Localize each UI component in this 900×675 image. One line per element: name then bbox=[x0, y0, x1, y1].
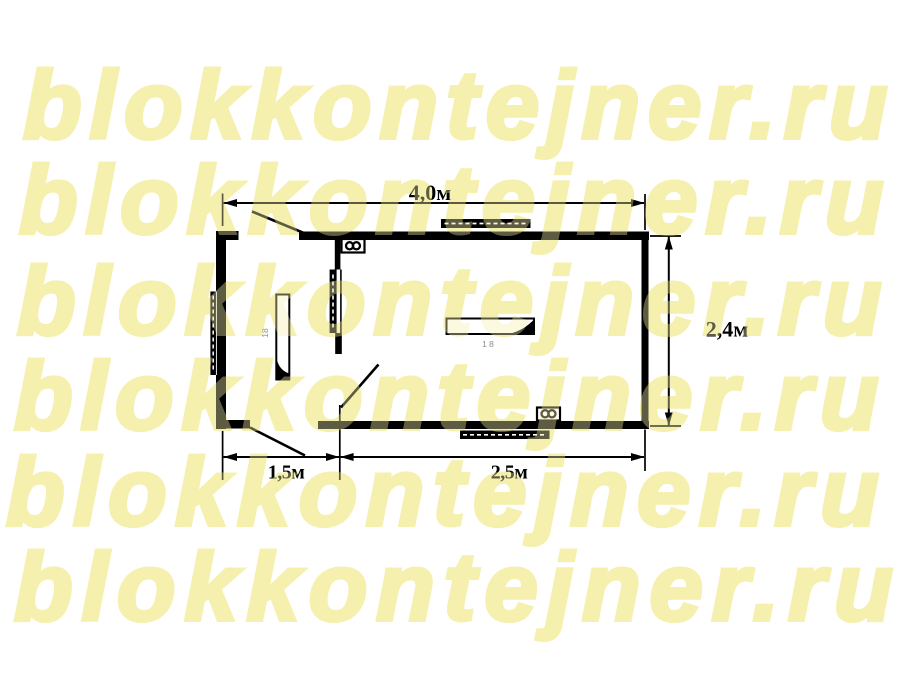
svg-text:2,4м: 2,4м bbox=[706, 317, 749, 342]
svg-text:1,5м: 1,5м bbox=[268, 461, 305, 483]
svg-text:4,0м: 4,0м bbox=[409, 180, 452, 205]
svg-text:18: 18 bbox=[260, 328, 270, 338]
svg-text:1 8: 1 8 bbox=[482, 339, 494, 349]
svg-text:2,5м: 2,5м bbox=[491, 461, 528, 483]
